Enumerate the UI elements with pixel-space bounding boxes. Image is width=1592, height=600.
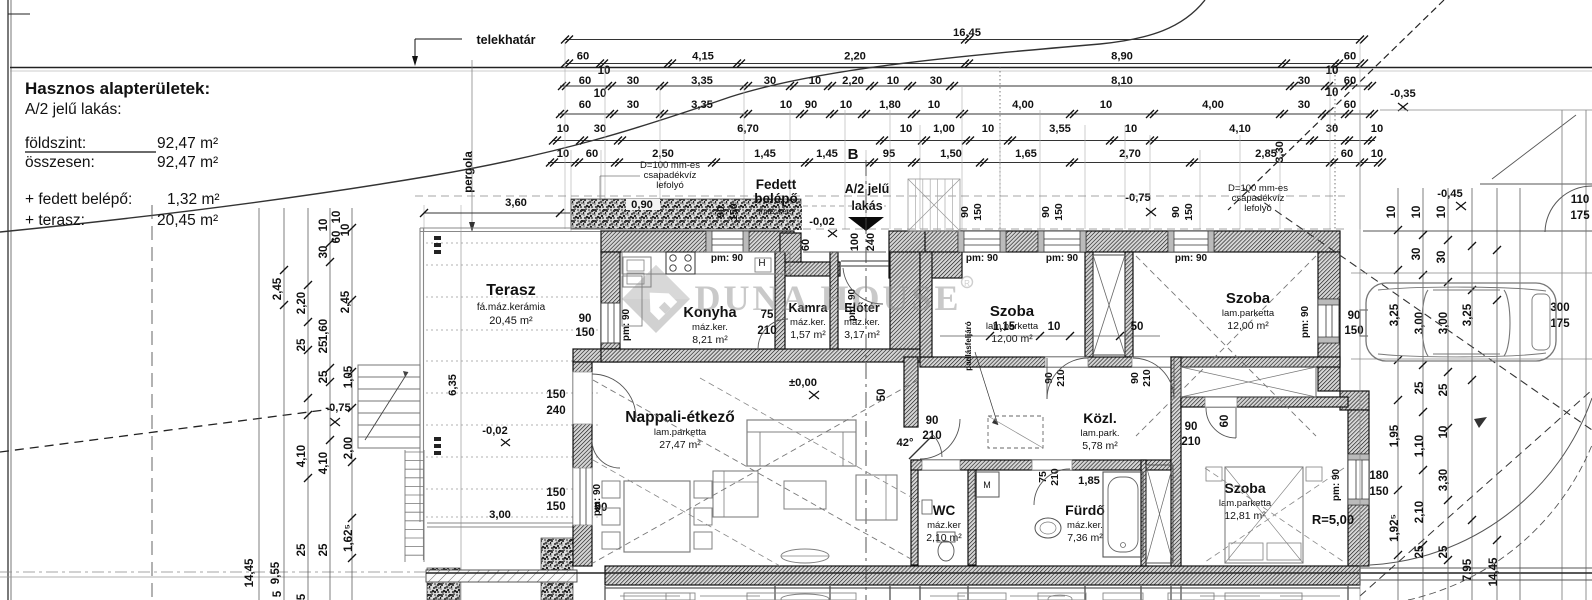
- svg-text:25: 25: [318, 370, 330, 383]
- svg-text:10: 10: [887, 75, 899, 87]
- svg-text:1,45: 1,45: [754, 148, 776, 160]
- svg-text:+ terasz:: + terasz:: [25, 212, 85, 229]
- svg-text:1,60: 1,60: [318, 319, 330, 341]
- svg-text:210: 210: [757, 325, 776, 337]
- svg-text:10: 10: [318, 219, 330, 232]
- svg-text:25: 25: [296, 338, 308, 351]
- svg-text:100: 100: [849, 233, 861, 251]
- svg-text:WC: WC: [933, 503, 956, 518]
- svg-text:150: 150: [546, 487, 565, 499]
- svg-text:30: 30: [764, 75, 776, 87]
- svg-text:25: 25: [318, 340, 330, 353]
- svg-text:3,35: 3,35: [691, 99, 713, 111]
- svg-text:95: 95: [883, 148, 895, 160]
- svg-text:25: 25: [1414, 545, 1426, 558]
- svg-text:10: 10: [1371, 123, 1383, 135]
- svg-text:60: 60: [1219, 415, 1231, 428]
- svg-text:-0,75: -0,75: [325, 402, 351, 414]
- svg-text:pm: 90: pm: 90: [711, 253, 744, 264]
- svg-text:3,00: 3,00: [1414, 312, 1426, 334]
- svg-text:30: 30: [594, 123, 606, 135]
- svg-text:padlásfeljáró: padlásfeljáró: [964, 321, 973, 370]
- svg-text:pergola: pergola: [463, 151, 475, 193]
- svg-text:10: 10: [331, 211, 343, 224]
- svg-text:lam.park.: lam.park.: [1080, 428, 1119, 439]
- svg-text:1,32 m²: 1,32 m²: [167, 191, 220, 208]
- svg-text:2,70: 2,70: [1119, 148, 1141, 160]
- svg-text:DUNA HOUSE: DUNA HOUSE: [694, 278, 961, 318]
- svg-text:4,00: 4,00: [1202, 99, 1224, 111]
- svg-text:1,57 m²: 1,57 m²: [790, 329, 826, 341]
- svg-text:92,47 m²: 92,47 m²: [157, 135, 218, 152]
- svg-text:R: R: [964, 279, 970, 288]
- svg-text:6,35: 6,35: [447, 374, 459, 396]
- svg-text:2,20: 2,20: [296, 292, 308, 314]
- svg-text:25: 25: [1438, 545, 1450, 558]
- svg-text:150: 150: [1183, 203, 1195, 221]
- svg-text:210: 210: [1141, 369, 1153, 387]
- svg-text:30: 30: [318, 246, 330, 259]
- svg-text:7,36 m²: 7,36 m²: [1067, 532, 1103, 544]
- svg-text:150: 150: [728, 203, 740, 221]
- svg-text:3,17 m²: 3,17 m²: [844, 329, 880, 341]
- svg-text:20,45 m²: 20,45 m²: [489, 315, 533, 327]
- svg-text:máz.ker.: máz.ker.: [692, 322, 728, 333]
- svg-text:90: 90: [805, 99, 817, 111]
- svg-text:A/2 jelű lakás:: A/2 jelű lakás:: [25, 101, 122, 118]
- svg-text:A/2 jelű: A/2 jelű: [845, 182, 889, 196]
- svg-text:30: 30: [930, 75, 942, 87]
- svg-text:pm: 90: pm: 90: [1046, 253, 1079, 264]
- svg-text:60: 60: [1344, 99, 1356, 111]
- svg-text:máz.ker.: máz.ker.: [844, 317, 880, 328]
- svg-text:máz.ker.: máz.ker.: [1067, 520, 1103, 531]
- svg-text:1,50: 1,50: [940, 148, 962, 160]
- svg-text:lam.parketta: lam.parketta: [654, 427, 707, 438]
- svg-text:10: 10: [840, 99, 852, 111]
- svg-text:10: 10: [1048, 321, 1061, 333]
- svg-text:110: 110: [1571, 194, 1590, 206]
- svg-text:Nappali-étkező: Nappali-étkező: [625, 409, 734, 426]
- svg-text:pm: 90: pm: 90: [1331, 468, 1342, 501]
- svg-text:10: 10: [1438, 426, 1450, 439]
- svg-text:10: 10: [1411, 206, 1423, 219]
- svg-text:50: 50: [876, 389, 888, 402]
- svg-text:10: 10: [780, 99, 792, 111]
- svg-text:-0,35: -0,35: [1390, 88, 1416, 100]
- svg-text:7,95: 7,95: [1462, 558, 1474, 581]
- svg-text:lefolyó: lefolyó: [656, 180, 683, 191]
- svg-text:10: 10: [1326, 65, 1339, 77]
- svg-text:150: 150: [546, 501, 565, 513]
- svg-text:Fürdő: Fürdő: [1065, 502, 1105, 518]
- svg-text:máz.ker.: máz.ker.: [790, 317, 826, 328]
- svg-text:150: 150: [546, 389, 565, 401]
- svg-text:8,10: 8,10: [1111, 75, 1133, 87]
- svg-text:1,95: 1,95: [1389, 424, 1401, 447]
- svg-text:16,45: 16,45: [953, 27, 981, 39]
- svg-text:pm: 90: pm: 90: [621, 308, 632, 341]
- svg-text:20,45 m²: 20,45 m²: [157, 212, 218, 229]
- svg-text:150: 150: [972, 203, 984, 221]
- svg-text:60: 60: [1341, 148, 1353, 160]
- svg-text:3,25: 3,25: [1389, 303, 1401, 326]
- svg-text:30: 30: [1298, 75, 1310, 87]
- svg-text:pm: 90: pm: 90: [1175, 253, 1208, 264]
- svg-text:1,15: 1,15: [993, 321, 1016, 333]
- svg-text:42°: 42°: [897, 437, 914, 449]
- svg-text:2,00: 2,00: [343, 437, 355, 459]
- svg-text:B: B: [848, 146, 859, 163]
- svg-text:-0,75: -0,75: [1125, 192, 1151, 204]
- svg-text:90: 90: [959, 206, 971, 218]
- svg-text:1,00: 1,00: [933, 123, 955, 135]
- svg-text:175: 175: [1550, 318, 1570, 330]
- svg-text:máz.ker: máz.ker: [927, 520, 961, 531]
- svg-text:lam.parketta: lam.parketta: [1222, 308, 1275, 319]
- svg-text:180: 180: [1369, 470, 1388, 482]
- svg-text:10: 10: [340, 224, 352, 237]
- svg-text:3,30: 3,30: [1438, 469, 1450, 491]
- svg-text:Szoba: Szoba: [1226, 290, 1271, 307]
- svg-text:90: 90: [1040, 206, 1052, 218]
- svg-text:+ fedett belépő:: + fedett belépő:: [25, 191, 132, 208]
- svg-text:210: 210: [1181, 436, 1200, 448]
- svg-text:összesen:: összesen:: [25, 154, 95, 171]
- svg-text:10: 10: [1100, 99, 1112, 111]
- svg-text:-0,02: -0,02: [809, 216, 835, 228]
- svg-text:1,10: 1,10: [1414, 435, 1426, 457]
- svg-text:10: 10: [557, 148, 569, 160]
- svg-text:Terasz: Terasz: [486, 282, 536, 299]
- svg-text:1,92⁵: 1,92⁵: [1389, 514, 1401, 542]
- svg-text:8,90: 8,90: [1111, 51, 1133, 63]
- svg-text:1,85: 1,85: [1078, 475, 1100, 487]
- svg-text:R=5,00: R=5,00: [1312, 512, 1354, 527]
- svg-text:4,10: 4,10: [318, 452, 330, 474]
- svg-text:3,60: 3,60: [505, 197, 527, 209]
- svg-text:4,10: 4,10: [1229, 123, 1251, 135]
- svg-text:1,80: 1,80: [879, 99, 901, 111]
- svg-text:60: 60: [800, 239, 812, 251]
- svg-text:150: 150: [1053, 203, 1065, 221]
- svg-text:5: 5: [296, 593, 308, 600]
- svg-text:9,55: 9,55: [270, 561, 282, 584]
- svg-text:12,00 m²: 12,00 m²: [991, 333, 1033, 345]
- svg-text:H: H: [758, 258, 765, 269]
- svg-text:-0,45: -0,45: [1437, 188, 1463, 200]
- svg-text:3,00: 3,00: [489, 509, 511, 521]
- svg-text:2,20: 2,20: [844, 51, 866, 63]
- svg-text:30: 30: [627, 99, 639, 111]
- svg-text:150: 150: [1369, 486, 1388, 498]
- svg-text:90: 90: [1185, 421, 1198, 433]
- svg-text:27,47 m²: 27,47 m²: [659, 439, 701, 451]
- svg-text:90: 90: [715, 206, 727, 218]
- svg-text:Hasznos alapterületek:: Hasznos alapterületek:: [25, 79, 210, 98]
- svg-text:4,15: 4,15: [692, 51, 714, 63]
- svg-text:8,21 m²: 8,21 m²: [692, 334, 728, 346]
- svg-text:pm: 90: pm: 90: [966, 253, 999, 264]
- svg-text:6,70: 6,70: [737, 123, 759, 135]
- svg-text:10: 10: [557, 123, 569, 135]
- svg-text:240: 240: [546, 405, 565, 417]
- svg-text:±0,00: ±0,00: [789, 377, 817, 389]
- svg-text:175: 175: [1570, 210, 1590, 222]
- svg-text:10: 10: [598, 65, 611, 77]
- svg-text:300: 300: [1550, 302, 1569, 314]
- svg-text:150: 150: [575, 327, 594, 339]
- svg-text:M: M: [983, 480, 991, 490]
- svg-text:3,25: 3,25: [1462, 303, 1474, 326]
- svg-text:10: 10: [809, 75, 821, 87]
- svg-text:90: 90: [926, 415, 939, 427]
- svg-text:10: 10: [1386, 206, 1398, 219]
- svg-text:5: 5: [272, 590, 284, 597]
- svg-text:10: 10: [900, 123, 912, 135]
- svg-text:3,00: 3,00: [1438, 312, 1450, 334]
- svg-text:14,45: 14,45: [1488, 557, 1500, 586]
- svg-text:10: 10: [1371, 148, 1383, 160]
- svg-text:telekhatár: telekhatár: [476, 33, 535, 47]
- svg-text:90: 90: [1129, 372, 1141, 384]
- svg-text:30: 30: [1298, 99, 1310, 111]
- svg-text:25: 25: [1414, 381, 1426, 394]
- svg-text:90: 90: [579, 313, 592, 325]
- svg-text:2,10: 2,10: [1414, 501, 1426, 523]
- svg-text:12,00 m²: 12,00 m²: [1227, 320, 1269, 332]
- svg-text:25: 25: [318, 543, 330, 556]
- svg-text:3,55: 3,55: [1049, 123, 1071, 135]
- svg-text:90: 90: [1170, 206, 1182, 218]
- svg-text:4,10: 4,10: [296, 445, 308, 467]
- svg-text:1,62⁵: 1,62⁵: [343, 524, 355, 552]
- svg-text:240: 240: [865, 233, 877, 251]
- svg-text:10: 10: [1125, 123, 1137, 135]
- svg-text:Fedett: Fedett: [756, 177, 797, 192]
- svg-text:(máz.ker.): (máz.ker.): [758, 207, 794, 216]
- svg-text:5,78 m²: 5,78 m²: [1082, 440, 1118, 452]
- svg-text:1,65: 1,65: [1015, 148, 1037, 160]
- svg-text:10: 10: [928, 99, 940, 111]
- svg-text:-0,02: -0,02: [482, 425, 508, 437]
- svg-text:60: 60: [577, 51, 589, 63]
- svg-text:30: 30: [1411, 248, 1423, 261]
- svg-text:25: 25: [1438, 383, 1450, 396]
- svg-text:Szoba: Szoba: [1224, 480, 1265, 496]
- svg-text:Szoba: Szoba: [990, 303, 1035, 320]
- svg-text:belépő: belépő: [754, 191, 798, 206]
- svg-text:2,45: 2,45: [340, 290, 352, 313]
- svg-text:30: 30: [1436, 251, 1448, 264]
- svg-text:92,47 m²: 92,47 m²: [157, 154, 218, 171]
- svg-text:0,90: 0,90: [631, 199, 653, 211]
- svg-text:3,35: 3,35: [691, 75, 713, 87]
- svg-text:fá.máz.kerámia: fá.máz.kerámia: [477, 302, 546, 313]
- svg-text:25: 25: [296, 543, 308, 556]
- svg-text:60: 60: [586, 148, 598, 160]
- svg-text:10: 10: [982, 123, 994, 135]
- svg-text:4,00: 4,00: [1012, 99, 1034, 111]
- svg-text:10: 10: [1326, 87, 1339, 99]
- svg-text:50: 50: [1131, 321, 1144, 333]
- svg-text:150: 150: [1344, 325, 1363, 337]
- svg-text:14,45: 14,45: [244, 558, 256, 587]
- svg-text:Közl.: Közl.: [1083, 410, 1116, 426]
- svg-text:90: 90: [1348, 310, 1361, 322]
- svg-text:60: 60: [579, 99, 591, 111]
- svg-text:1,05: 1,05: [343, 365, 355, 388]
- svg-text:földszint:: földszint:: [25, 135, 86, 152]
- svg-text:10: 10: [1436, 206, 1448, 219]
- svg-text:2,45: 2,45: [272, 277, 284, 300]
- svg-text:30: 30: [1326, 123, 1338, 135]
- svg-text:10: 10: [594, 88, 607, 100]
- svg-text:60: 60: [1344, 51, 1356, 63]
- svg-text:2,50: 2,50: [652, 148, 674, 160]
- svg-text:30: 30: [627, 75, 639, 87]
- svg-text:pm: 90: pm: 90: [1300, 305, 1311, 338]
- svg-text:60: 60: [1344, 75, 1356, 87]
- svg-text:2,20: 2,20: [842, 75, 864, 87]
- svg-text:60: 60: [579, 75, 591, 87]
- svg-text:1,45: 1,45: [816, 148, 838, 160]
